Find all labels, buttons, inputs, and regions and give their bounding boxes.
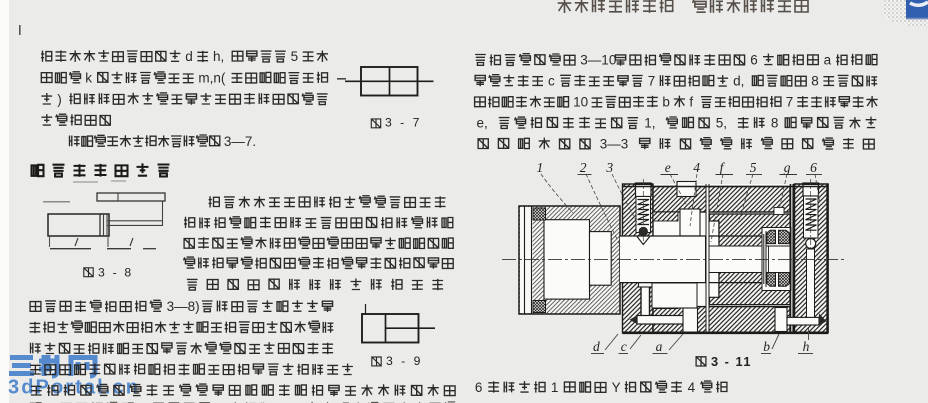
svg-text:f: f <box>689 95 693 110</box>
svg-text:m,n(: m,n( <box>198 71 226 86</box>
svg-text:3: 3 <box>605 160 613 175</box>
svg-text:a: a <box>824 53 832 68</box>
svg-text:7: 7 <box>786 95 794 110</box>
svg-text:7: 7 <box>648 74 656 89</box>
svg-text:3 - 7: 3 - 7 <box>385 116 422 130</box>
svg-text:10: 10 <box>573 95 588 110</box>
svg-text:): ) <box>57 92 62 107</box>
svg-text:k: k <box>85 71 92 86</box>
svg-text:5: 5 <box>750 160 757 175</box>
svg-text:5: 5 <box>291 49 299 64</box>
svg-text:h,: h, <box>213 49 224 64</box>
svg-text:d,: d, <box>733 74 744 89</box>
svg-text:3—7.: 3—7. <box>224 134 256 149</box>
svg-text:e,: e, <box>477 116 488 131</box>
svg-text:Y: Y <box>612 380 621 395</box>
svg-text:8: 8 <box>811 74 819 89</box>
svg-text:a: a <box>656 339 663 354</box>
svg-text:3—3: 3—3 <box>600 137 629 152</box>
svg-text:8: 8 <box>771 116 779 131</box>
svg-text:e: e <box>665 160 671 175</box>
svg-text:3 - 11: 3 - 11 <box>711 354 752 369</box>
svg-text:4: 4 <box>688 380 696 395</box>
svg-text:g: g <box>784 160 791 175</box>
svg-text:2: 2 <box>580 160 587 175</box>
svg-text:6: 6 <box>475 380 483 395</box>
svg-text:c: c <box>621 339 627 354</box>
svg-text:1: 1 <box>537 160 544 175</box>
svg-text:3 - 9: 3 - 9 <box>386 354 423 368</box>
svg-text:b: b <box>763 339 770 354</box>
svg-text:1: 1 <box>551 380 559 395</box>
svg-text:3—8): 3—8) <box>167 299 200 314</box>
svg-text:1,: 1, <box>644 116 655 131</box>
svg-text:b: b <box>662 95 670 110</box>
svg-text:6: 6 <box>750 53 758 68</box>
svg-text:h: h <box>803 339 810 354</box>
svg-text:4: 4 <box>693 160 700 175</box>
svg-text:d: d <box>185 49 193 64</box>
svg-text:c: c <box>548 74 555 89</box>
svg-text:5,: 5, <box>716 116 727 131</box>
svg-text:d: d <box>593 339 600 354</box>
svg-text:3—10: 3—10 <box>580 53 616 68</box>
svg-text:6: 6 <box>810 160 817 175</box>
svg-text:3 - 8: 3 - 8 <box>98 265 133 279</box>
